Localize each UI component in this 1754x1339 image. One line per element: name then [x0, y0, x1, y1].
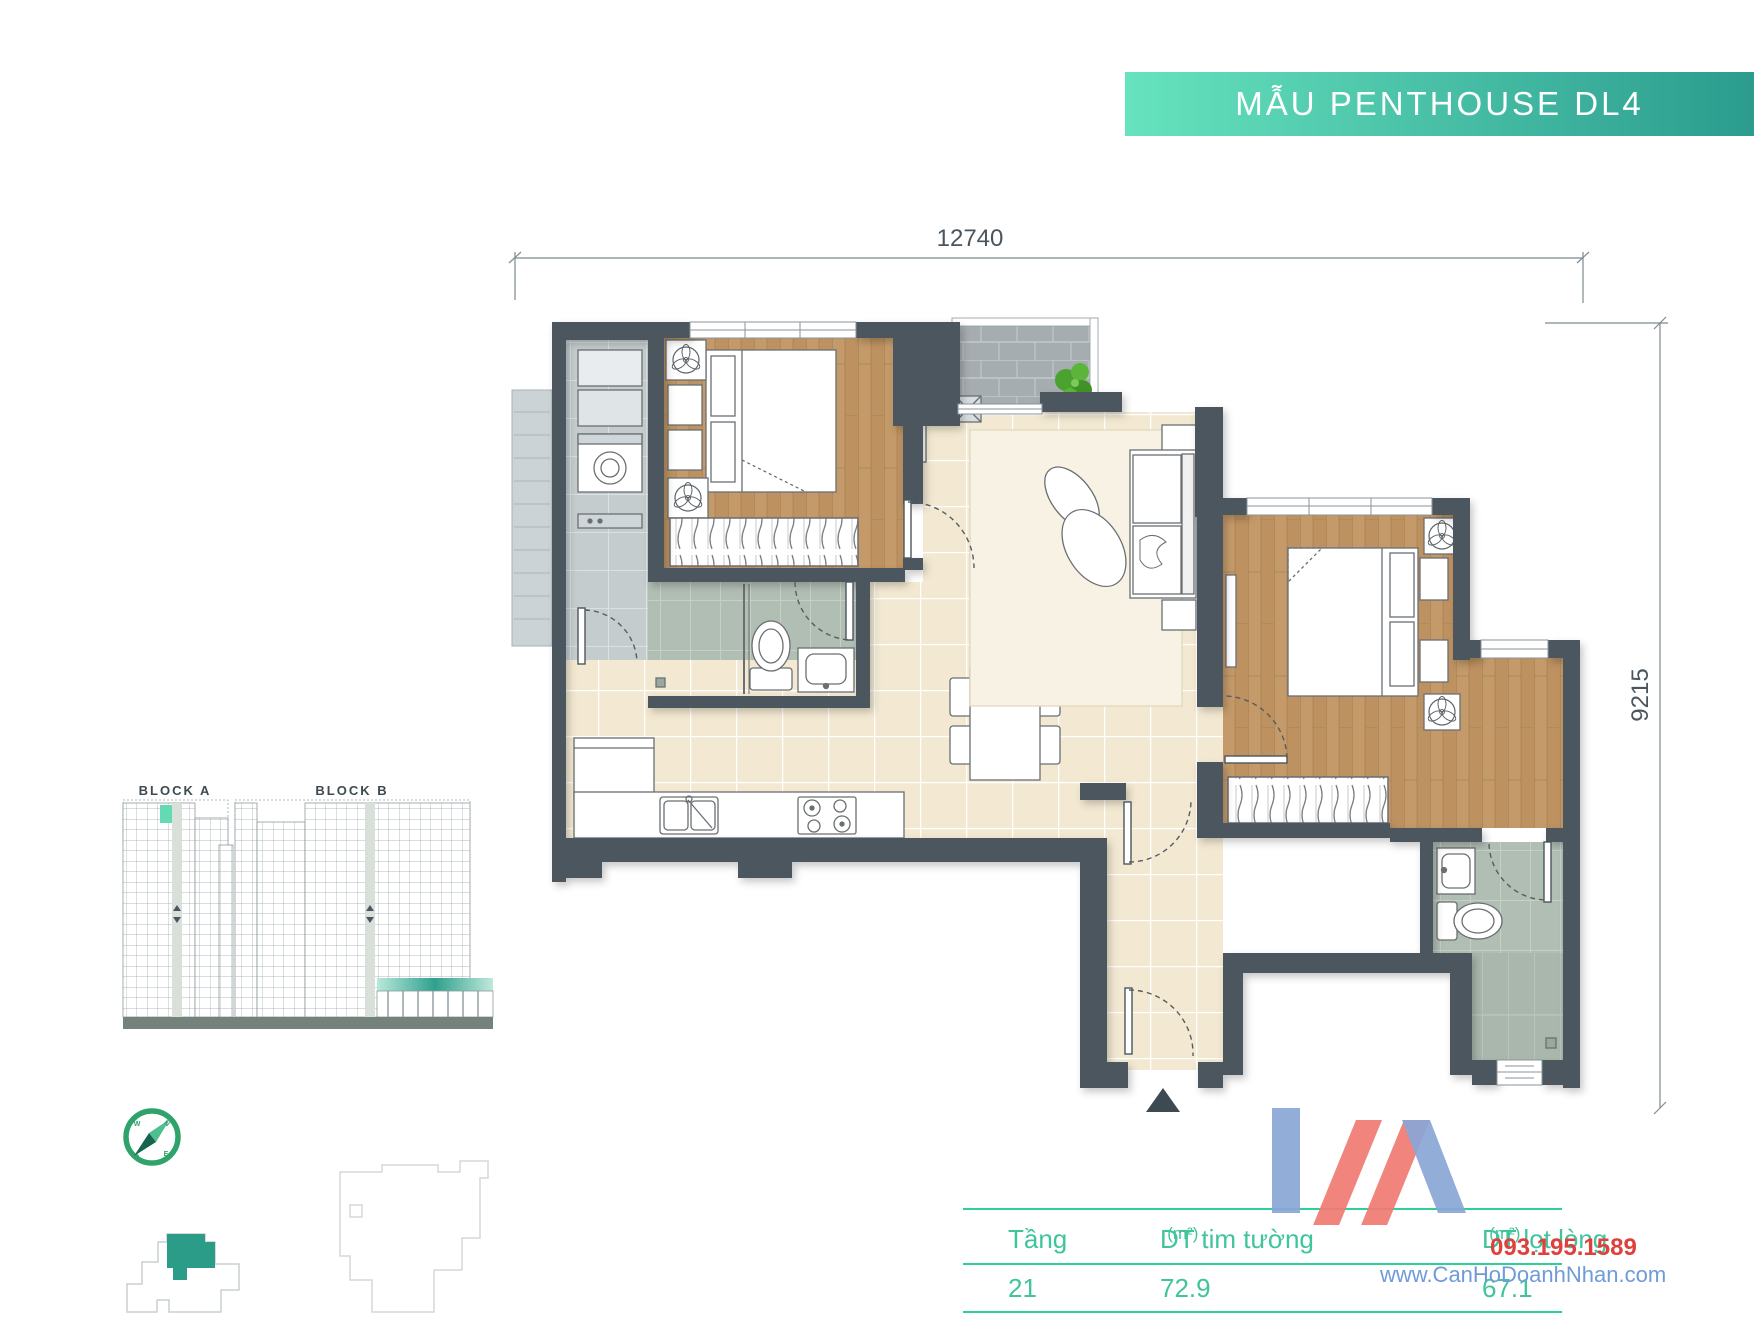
title-banner: MẪU PENTHOUSE DL4 [1125, 72, 1754, 136]
wall-area-value: 72.9 [1160, 1273, 1211, 1304]
tv-panel-2 [1226, 575, 1236, 667]
block-elevation: BLOCK A BLOCK B [123, 783, 493, 1029]
svg-text:W: W [134, 1121, 141, 1128]
window-bedroom2 [1247, 498, 1432, 515]
keyplan-b-outline [340, 1161, 488, 1312]
wardrobe-1 [670, 518, 858, 566]
dimension-top-label: 12740 [937, 225, 1004, 252]
window-balcony-door [958, 404, 1042, 414]
col-wall-area-header: DT tim tường (m²) [1160, 1224, 1167, 1255]
key-plans [127, 1161, 488, 1312]
utility-ledge [512, 390, 552, 646]
col-net-area-header: DT lọt lòng (m²) [1482, 1224, 1489, 1255]
window-bedroom1 [690, 322, 856, 338]
ground-bar [123, 1017, 493, 1029]
block-a-label: BLOCK A [139, 783, 212, 798]
col-floor-header: Tầng [1008, 1224, 1067, 1255]
window-bedroom2-side [1481, 640, 1548, 658]
svg-text:E: E [164, 1151, 169, 1158]
compass-icon: N S E W [126, 1111, 178, 1163]
watermark-phone: 093.195.1589 [1490, 1234, 1637, 1262]
watermark-logo [1260, 1100, 1490, 1225]
page-title: MẪU PENTHOUSE DL4 [1235, 85, 1644, 123]
block-b-label: BLOCK B [315, 783, 388, 798]
page: 12740 9215 [0, 0, 1754, 1339]
floorplan-canvas: 12740 9215 [0, 0, 1754, 1339]
room-corridor-floor [866, 582, 923, 702]
entrance-arrow [1146, 1088, 1180, 1112]
block-a-grid [123, 803, 233, 1017]
block-b-grid [235, 803, 493, 1017]
window-bathroom2 [1497, 1060, 1542, 1085]
floor-value: 21 [1008, 1273, 1037, 1304]
dimension-right-label: 9215 [1627, 668, 1654, 721]
watermark-website: www.CanHoDoanhNhan.com [1380, 1262, 1666, 1288]
wardrobe-2 [1228, 777, 1388, 823]
